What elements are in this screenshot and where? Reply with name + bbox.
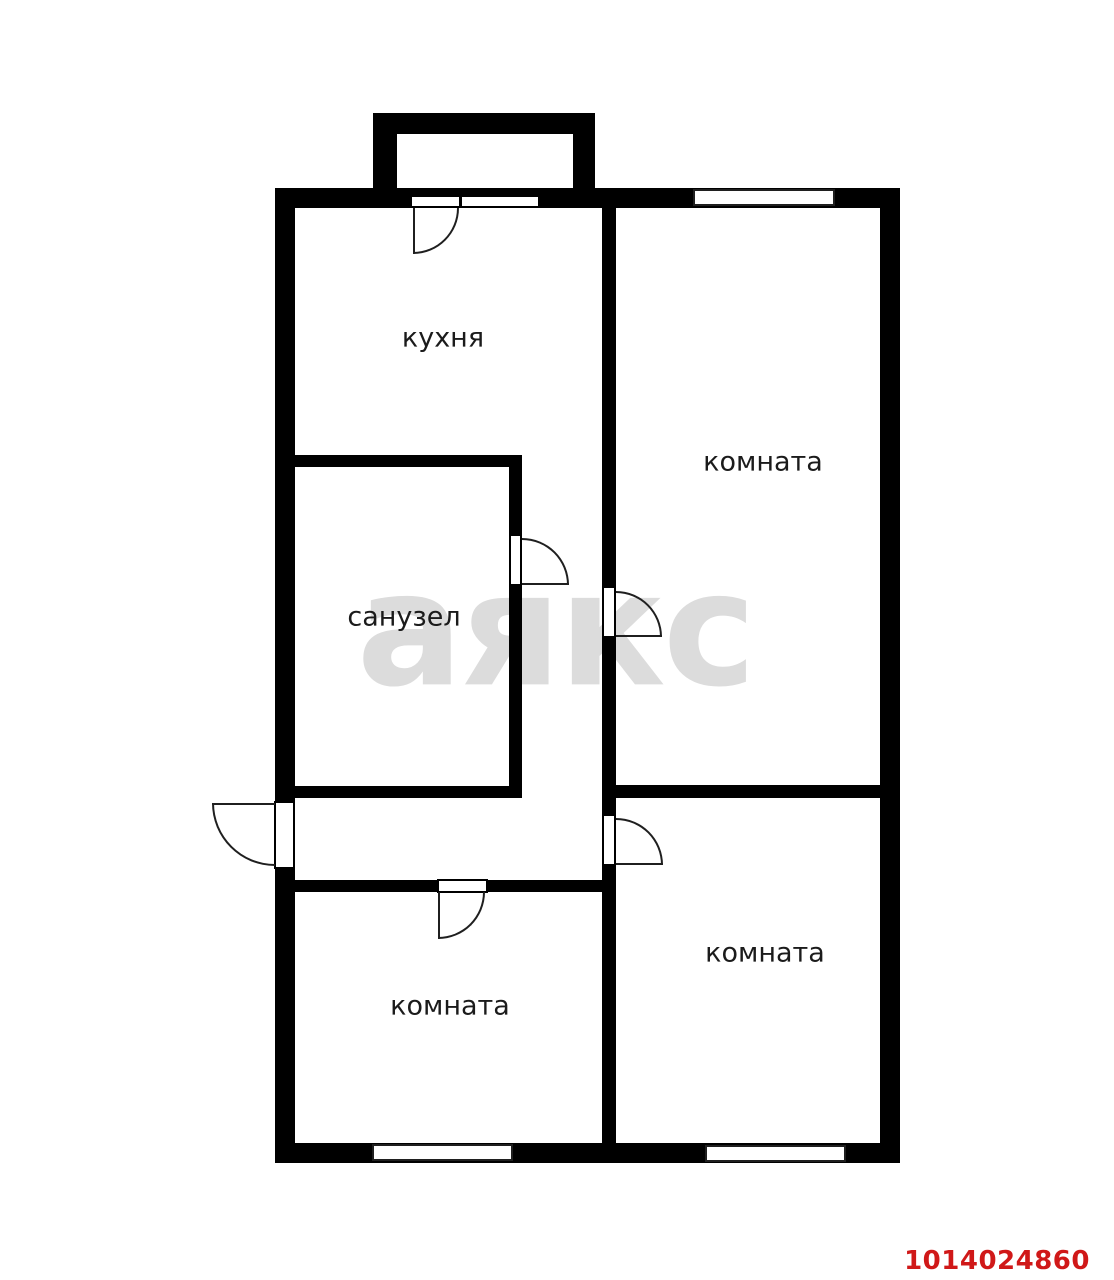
balcony-door-swing-arc bbox=[413, 208, 459, 254]
window-room-top-right bbox=[693, 189, 835, 206]
room-label-room-bottom-right: комната bbox=[705, 938, 825, 969]
window-room-bottom-right bbox=[705, 1145, 846, 1162]
balcony-window bbox=[460, 195, 540, 208]
wall-right-rooms-divider bbox=[616, 785, 880, 798]
wall-hall-bottom-right bbox=[488, 880, 602, 892]
entrance-door-leaf bbox=[274, 801, 295, 869]
wall-interior-main-vertical bbox=[602, 208, 616, 1143]
wall-bathroom-right bbox=[509, 455, 522, 798]
listing-id: 1014024860 bbox=[904, 1246, 1090, 1276]
room-top-right-door-leaf bbox=[602, 586, 616, 638]
floor-plan: аякс кухня комната санузел комната комна… bbox=[0, 0, 1114, 1280]
room-bottom-right-door-leaf bbox=[602, 814, 616, 866]
bathroom-door-leaf bbox=[509, 534, 522, 586]
room-label-room-top-right: комната bbox=[703, 447, 823, 478]
entrance-door-swing-arc bbox=[212, 803, 275, 866]
room-bottom-left-door-leaf bbox=[437, 879, 488, 893]
wall-bathroom-top bbox=[295, 455, 509, 467]
wall-left bbox=[275, 188, 295, 1163]
wall-right bbox=[880, 188, 900, 1163]
room-label-kitchen: кухня bbox=[402, 323, 484, 354]
room-bottom-left-door-swing-arc bbox=[438, 892, 485, 939]
wall-bathroom-bottom bbox=[295, 786, 522, 798]
room-label-bathroom: санузел bbox=[347, 602, 460, 633]
window-room-bottom-left bbox=[372, 1144, 513, 1161]
room-bottom-right-door-swing-arc bbox=[616, 818, 663, 865]
wall-hall-bottom-left bbox=[295, 880, 438, 892]
room-label-room-bottom-left: комната bbox=[390, 991, 510, 1022]
balcony-door-leaf bbox=[410, 195, 461, 208]
